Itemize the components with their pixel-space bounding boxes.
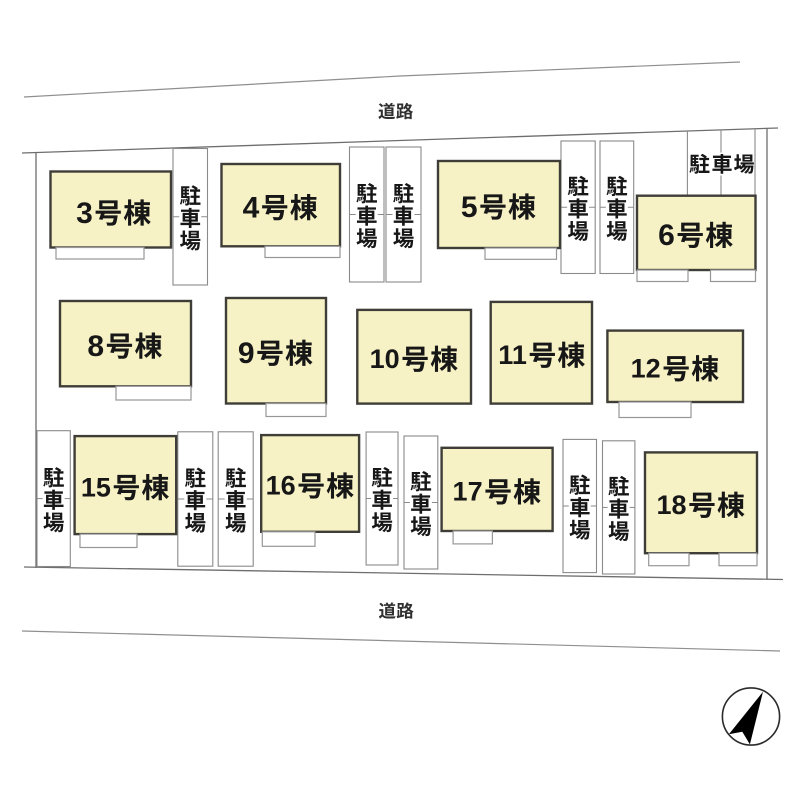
svg-text:3: 3 [76, 197, 93, 230]
svg-text:9: 9 [238, 337, 255, 370]
svg-text:10: 10 [370, 344, 400, 374]
svg-text:8: 8 [87, 330, 104, 363]
svg-text:17: 17 [453, 477, 483, 507]
svg-text:18: 18 [656, 490, 686, 520]
svg-text:6: 6 [658, 219, 675, 252]
svg-text:15: 15 [81, 472, 111, 502]
svg-text:5: 5 [461, 191, 478, 224]
svg-text:16: 16 [266, 471, 296, 501]
svg-text:12: 12 [631, 354, 661, 384]
svg-text:4: 4 [243, 192, 260, 225]
svg-text:11: 11 [498, 340, 527, 370]
